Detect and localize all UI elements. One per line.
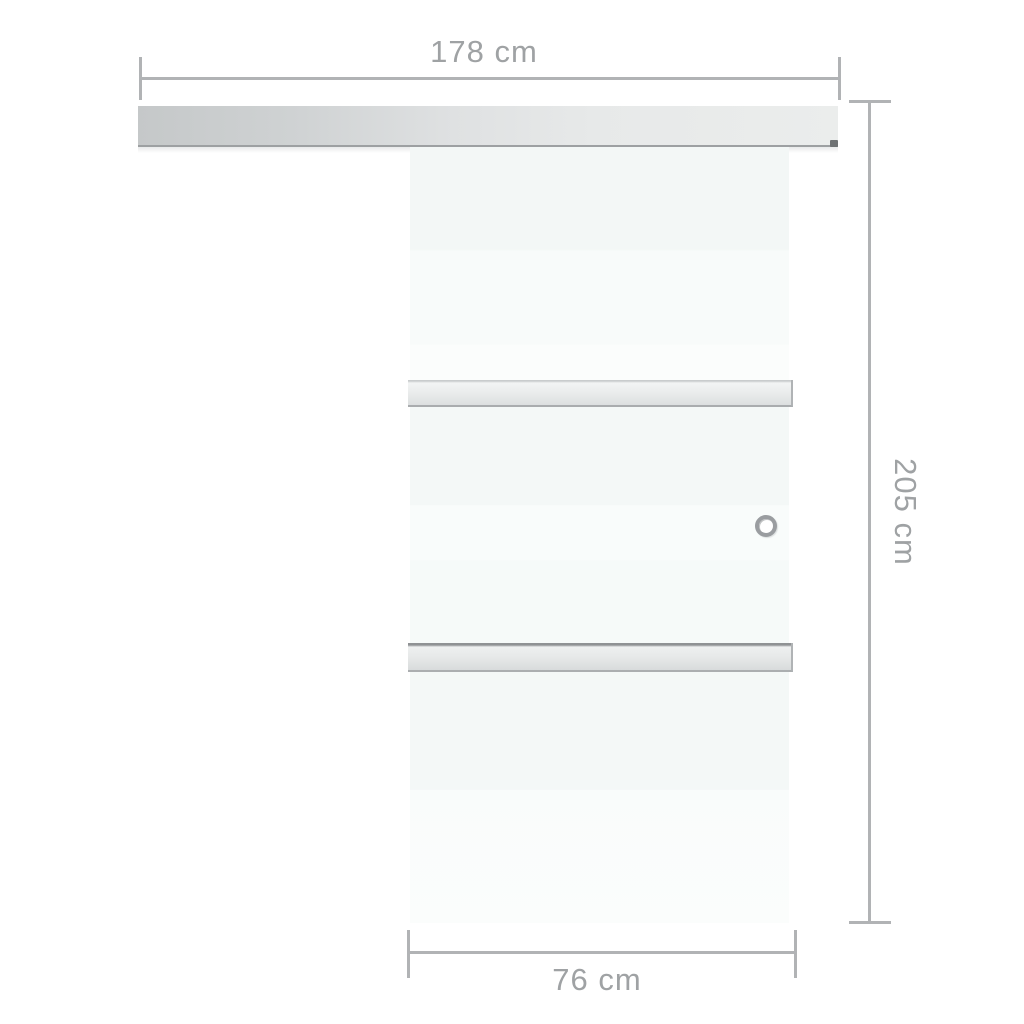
door-width-dimension-tick-left	[407, 930, 410, 978]
width-dimension-tick-left	[139, 57, 142, 100]
width-dimension-line	[141, 77, 840, 80]
dimension-diagram: 178 cm 205 cm 76 cm	[0, 0, 1024, 1024]
door-stop-bar-lower	[408, 643, 793, 672]
rail-end-stop	[830, 140, 838, 147]
top-rail	[138, 106, 838, 147]
door-stop-bar-upper	[408, 380, 793, 407]
height-dimension-label: 205 cm	[887, 458, 923, 566]
door-handle	[755, 515, 777, 537]
door-width-dimension-line	[409, 951, 797, 954]
width-dimension-label: 178 cm	[430, 34, 538, 70]
height-dimension-tick-bottom	[849, 921, 891, 924]
height-dimension-tick-top	[849, 100, 891, 103]
door-width-dimension-tick-right	[794, 930, 797, 978]
door-width-dimension-label: 76 cm	[552, 962, 641, 998]
width-dimension-tick-right	[838, 57, 841, 100]
height-dimension-line	[868, 101, 871, 923]
glass-door-panel	[410, 147, 789, 923]
